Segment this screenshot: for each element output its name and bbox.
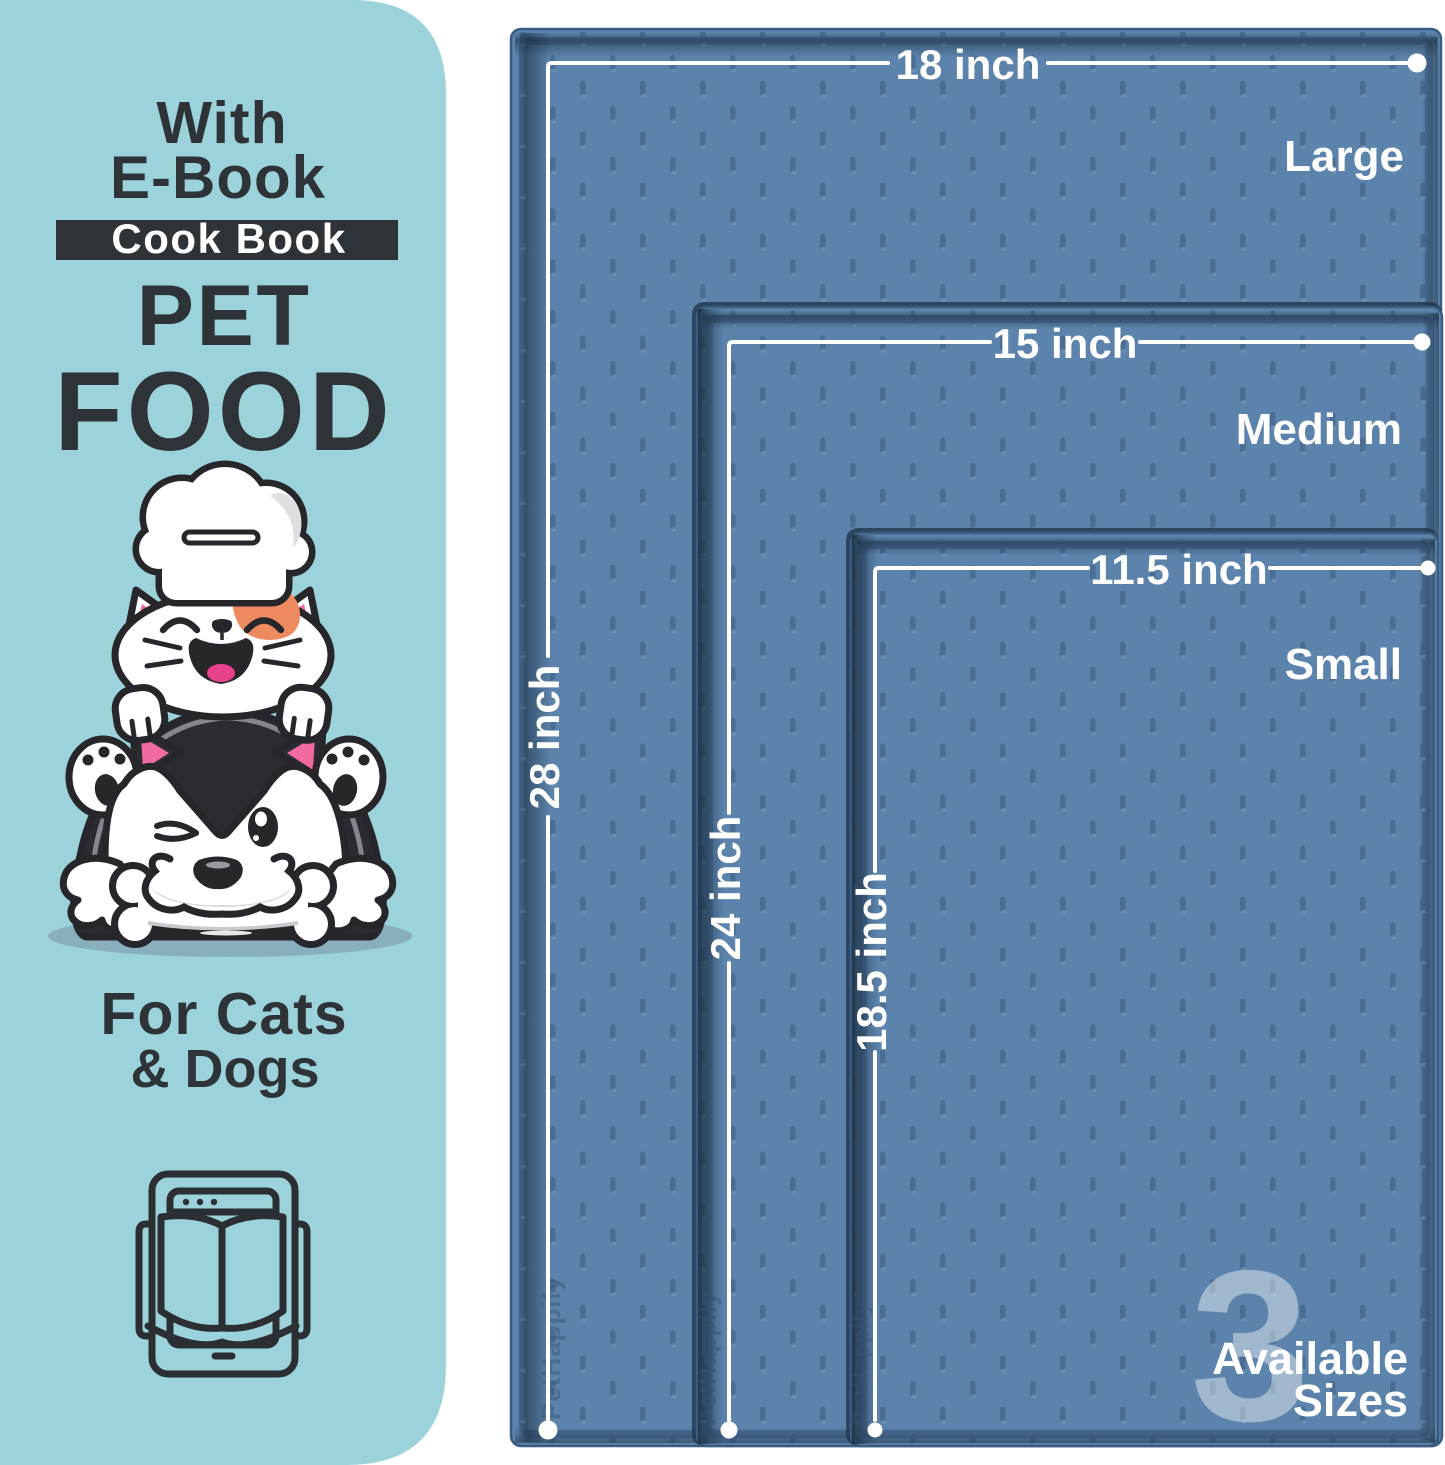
svg-text:Sizes: Sizes — [1293, 1375, 1408, 1426]
svg-text:18 inch: 18 inch — [896, 41, 1041, 88]
svg-text:Small: Small — [1285, 640, 1402, 689]
svg-text:For Cats: For Cats — [100, 981, 347, 1047]
svg-text:15 inch: 15 inch — [993, 320, 1138, 367]
svg-text:PetHappily: PetHappily — [848, 1301, 873, 1425]
svg-text:PetHappily: PetHappily — [695, 1291, 722, 1425]
svg-text:PetHappily: PetHappily — [536, 1276, 566, 1420]
svg-text:Medium: Medium — [1236, 405, 1402, 454]
svg-text:11.5 inch: 11.5 inch — [1090, 546, 1267, 593]
svg-text:18.5 inch: 18.5 inch — [848, 872, 895, 1052]
svg-text:& Dogs: & Dogs — [131, 1039, 320, 1099]
svg-text:FOOD: FOOD — [54, 349, 394, 474]
svg-text:Large: Large — [1284, 132, 1404, 181]
svg-text:24 inch: 24 inch — [702, 816, 749, 961]
svg-text:E-Book: E-Book — [110, 144, 326, 211]
svg-text:Cook Book: Cook Book — [111, 215, 346, 262]
svg-text:28 inch: 28 inch — [521, 665, 568, 810]
